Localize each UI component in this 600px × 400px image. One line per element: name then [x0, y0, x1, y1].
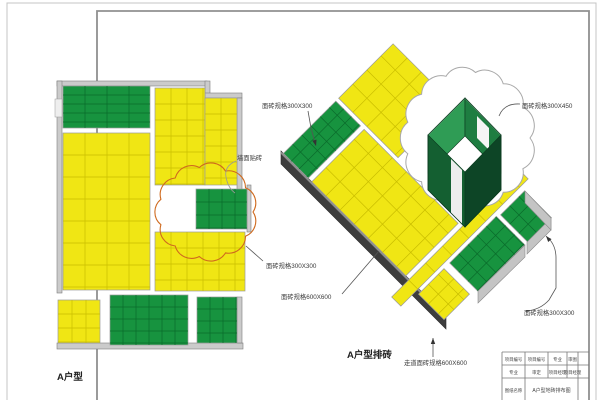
- title-block-cell: 专业: [553, 356, 562, 363]
- annotation-walkway: 走道面砖规格600X600: [404, 358, 467, 367]
- title-block-drawing-name-label: 图纸名称: [505, 387, 523, 394]
- annotation-spec-floor: 面砖规格600X600: [281, 292, 332, 301]
- plan-2d-view: [58, 86, 247, 345]
- title-block-cell: 审定: [532, 369, 541, 376]
- plan-3d-label: A户型排砖: [347, 349, 392, 361]
- title-block-cell: 审图: [568, 356, 577, 363]
- title-block-cell: 专业: [509, 369, 518, 376]
- tiling-plan-drawing: 墙面贴砖 面砖规格300X300 面砖规格300X450 面砖规格300X300…: [0, 0, 600, 400]
- annotation-spec-balcony: 面砖规格300X300: [262, 101, 313, 110]
- annotation-spec-bath: 面砖规格300X300: [266, 261, 317, 270]
- title-block-cell: 项目编号: [528, 356, 546, 363]
- annotation-spec-kitchen: 面砖规格300X300: [524, 308, 575, 317]
- plan-2d-label: A户型: [57, 371, 83, 383]
- drawing-sheet: 墙面贴砖 面砖规格300X300 面砖规格300X450 面砖规格300X300…: [0, 0, 600, 400]
- title-block-cell: 项目经理: [564, 369, 582, 376]
- title-block-cell: 项目编号: [505, 356, 523, 363]
- title-block-drawing-name: A户型地砖排布图: [532, 387, 570, 394]
- annotation-wall-tile: 墙面贴砖: [237, 153, 263, 162]
- annotation-spec-box: 面砖规格300X450: [522, 101, 573, 110]
- title-block: 项目编号 项目编号 专业 审图 专业 审定 项目经理 项目经理 图纸名称 A户型…: [502, 352, 589, 400]
